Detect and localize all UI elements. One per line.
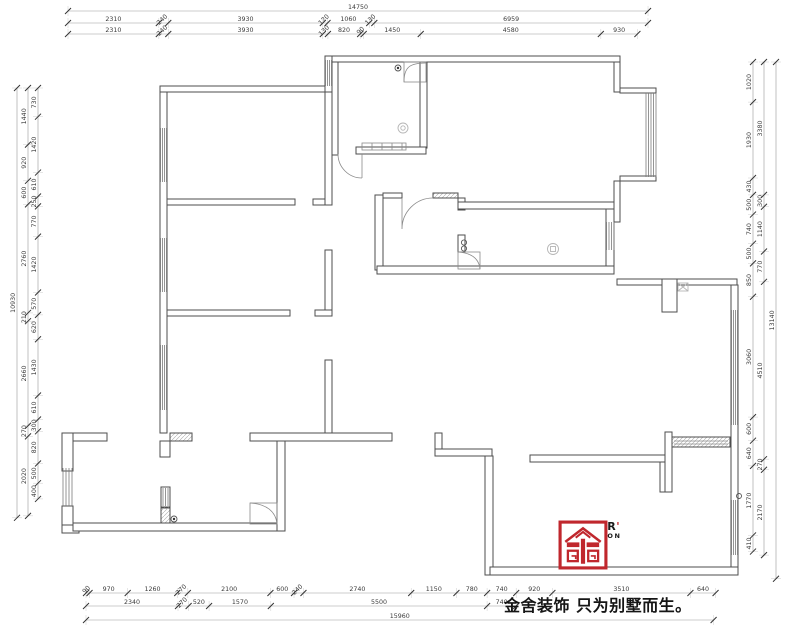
dim-label: 270 [21,425,28,437]
wall [315,310,332,316]
dim-label: 600 [276,586,288,593]
window-hatch [63,468,72,506]
dim-label: 3930 [238,27,254,34]
dim-label: 4510 [757,362,764,378]
wall [277,441,285,531]
dim-label: 610 [31,401,38,413]
wall [485,456,493,575]
floor-drain-icon [398,123,408,133]
wall [458,202,614,209]
floor-plan-canvas: 1475023102403930120106013069592310240393… [0,0,800,640]
dim-label: 850 [746,274,753,286]
wall [332,62,338,155]
wall [383,193,402,198]
wall [325,360,332,433]
dim-label: 610 [31,179,38,191]
dim-label: 500 [746,247,753,259]
dim-label: 600 [746,423,753,435]
dim-label: 5500 [371,599,387,606]
dim-label: 1770 [746,493,753,509]
dim-label: 3060 [746,349,753,365]
brand-slogan: 金舍装饰 只为别墅而生。 [504,592,692,616]
dim-label: 930 [613,27,625,34]
dim-label: 740 [746,223,753,235]
dim-label: 1260 [144,586,160,593]
dim-label: 4580 [503,27,519,34]
dim-label: 520 [193,599,205,606]
dim-label: 14750 [348,4,368,11]
dim-label: 410 [746,538,753,550]
corner-cabinet-arc [250,503,277,524]
wall-infill [170,433,192,441]
wall [620,88,656,93]
dim-label: 1060 [340,16,356,23]
wall [606,209,614,273]
dim-label: 120 [317,13,330,26]
wall [160,92,167,433]
wall [530,455,667,462]
dim-label: 2660 [21,365,28,381]
dim-label: 820 [31,441,38,453]
dim-label: 1420 [31,137,38,153]
dim-label: 1440 [21,108,28,124]
bay-window-sill [672,437,730,447]
dim-label: 2740 [349,586,365,593]
dim-label: 300 [31,419,38,431]
dim-label: 2310 [105,16,121,23]
dim-label: 1570 [232,599,248,606]
dim-label: 640 [697,586,709,593]
window-hatch [646,93,656,177]
wall [356,147,426,154]
dim-label: 920 [21,157,28,169]
wall [614,62,620,92]
dim-label: 270 [757,458,764,470]
dim-label: 3380 [757,120,764,136]
dim-label: 2340 [124,599,140,606]
dim-label: 770 [757,261,764,273]
dim-label: 600 [21,187,28,199]
dim-label: 500 [746,199,753,211]
floorplan-sheet: 1475023102403930120106013069592310240393… [0,0,800,640]
dim-label: 1450 [384,27,400,34]
corner-cabinet [250,503,277,524]
dim-label: 2760 [21,251,28,267]
dim-label: 730 [31,96,38,108]
wall [160,86,332,92]
dim-label: 210 [21,311,28,323]
dim-label: 780 [466,586,478,593]
door-swing-arc [402,198,433,229]
dim-label: 90 [356,26,367,37]
dim-label: 15960 [390,613,410,620]
dim-label: 1930 [746,132,753,148]
wall-pilaster [161,507,170,523]
dim-label: 6959 [503,16,519,23]
dim-label: 2170 [757,504,764,520]
wall [325,92,332,205]
wall [614,181,620,222]
dim-label: 130 [364,13,377,26]
dim-label: 13140 [769,310,776,330]
door-swing-arc [338,154,362,178]
dim-label: 130 [318,24,331,37]
dim-label: 1430 [31,359,38,375]
wall [325,56,332,92]
pipe-point-dot [397,67,399,69]
wall [435,449,492,456]
wall-infill [433,193,458,198]
dim-label: 2020 [21,468,28,484]
floor-drain-icon [551,247,556,252]
wall [330,56,620,62]
dim-label: 570 [31,298,38,310]
dim-label: 1020 [746,74,753,90]
dim-label: 10930 [10,293,17,313]
floor-drain-icon [401,126,405,130]
dim-label: 500 [31,467,38,479]
pipe-point-dot [173,518,175,520]
kingser-logo-icon [558,520,608,570]
wall [731,285,738,575]
dim-label: 970 [103,586,115,593]
dim-label: 1420 [31,257,38,273]
wall [325,250,332,316]
wall-pier [662,279,677,312]
dim-label: 620 [31,321,38,333]
kingser-logo: KINGSER' DECORATION [558,520,618,540]
dim-label: 90 [81,585,92,596]
wall [375,195,383,270]
wall [377,266,614,274]
dim-label: 1140 [757,221,764,237]
dim-label: 250 [31,195,38,207]
wall [62,433,73,471]
wall [250,433,392,441]
dim-label: 820 [338,27,350,34]
wall [665,432,672,492]
wall [313,199,325,205]
dim-label: 400 [31,485,38,497]
dim-label: 640 [746,447,753,459]
dim-label: 770 [31,215,38,227]
wall [167,199,295,205]
dim-label: 300 [757,195,764,207]
wall [490,567,738,575]
wall [167,310,290,316]
floor-drain-icon [548,244,559,255]
wall-pier [160,441,170,457]
dimensions-layer: 1475023102403930120106013069592310240393… [10,4,781,625]
dim-label: 3930 [238,16,254,23]
dim-label: 1150 [426,586,442,593]
dim-label: 430 [746,180,753,192]
dim-label: 2100 [221,586,237,593]
dim-label: 2310 [105,27,121,34]
